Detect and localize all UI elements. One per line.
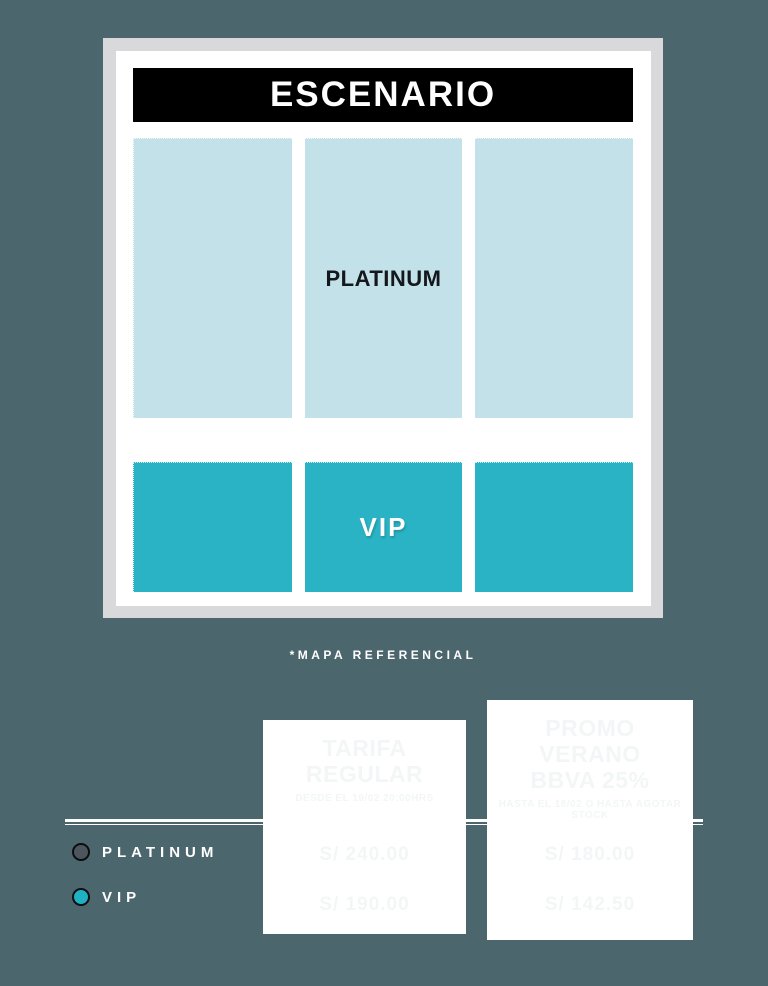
legend-item-vip: VIP <box>72 888 141 906</box>
map-reference-caption: *MAPA REFERENCIAL <box>103 648 663 662</box>
platinum-section-left <box>133 138 292 418</box>
price-card-regular: TARIFA REGULAR DESDE EL 19/02 20:00HRS S… <box>263 720 466 934</box>
platinum-section-label: PLATINUM <box>325 266 441 292</box>
price-regular-platinum: S/ 240.00 <box>263 844 466 866</box>
price-card-promo-subtitle: HASTA EL 18/02 O HASTA AGOTAR STOCK <box>495 799 685 821</box>
vip-section-left <box>133 462 292 592</box>
platinum-legend-dot-icon <box>72 843 90 861</box>
legend-vip-label: VIP <box>102 889 141 906</box>
legend-platinum-label: PLATINUM <box>102 844 218 861</box>
platinum-section-center: PLATINUM <box>305 138 463 418</box>
price-card-regular-subtitle: DESDE EL 19/02 20:00HRS <box>270 793 460 804</box>
platinum-section-right <box>475 138 633 418</box>
stage-map-panel: ESCENARIO PLATINUM VIP <box>116 51 651 606</box>
price-card-promo-title: PROMO VERANO BBVA 25% <box>515 700 665 793</box>
vip-section-right <box>475 462 633 592</box>
vip-legend-dot-icon <box>72 888 90 906</box>
price-promo-platinum: S/ 180.00 <box>487 844 693 866</box>
platinum-section-row: PLATINUM <box>133 138 633 418</box>
legend-item-platinum: PLATINUM <box>72 843 218 861</box>
stage-banner: ESCENARIO <box>133 68 633 122</box>
price-card-promo: PROMO VERANO BBVA 25% HASTA EL 18/02 O H… <box>487 700 693 940</box>
stage-map-frame: ESCENARIO PLATINUM VIP <box>103 38 663 618</box>
stage-banner-label: ESCENARIO <box>270 75 496 115</box>
vip-section-center: VIP <box>305 462 463 592</box>
vip-section-row: VIP <box>133 462 633 592</box>
price-card-regular-title: TARIFA REGULAR <box>290 720 440 787</box>
price-promo-vip: S/ 142.50 <box>487 894 693 916</box>
price-regular-vip: S/ 190.00 <box>263 894 466 916</box>
vip-section-label: VIP <box>360 512 408 543</box>
